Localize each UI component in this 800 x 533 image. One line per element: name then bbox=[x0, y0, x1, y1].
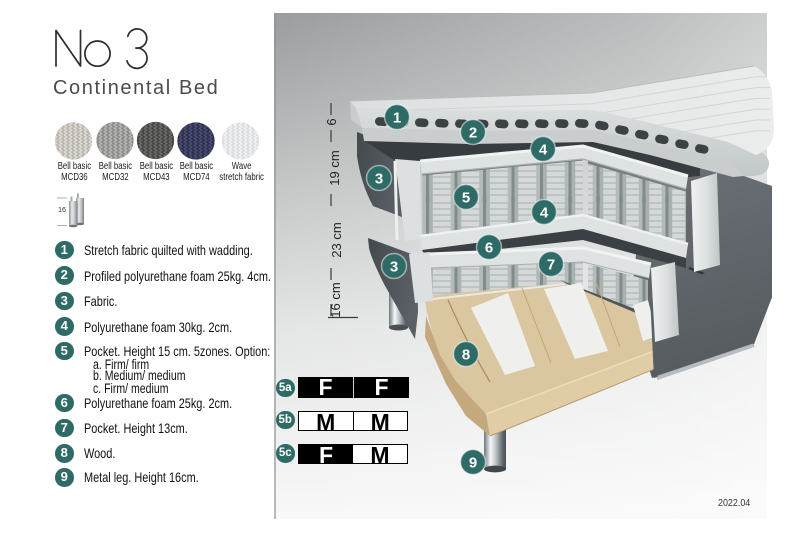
svg-text:1: 1 bbox=[393, 109, 401, 126]
svg-text:3: 3 bbox=[390, 258, 398, 275]
svg-text:3: 3 bbox=[375, 170, 383, 187]
svg-text:6: 6 bbox=[324, 118, 339, 125]
svg-text:6: 6 bbox=[485, 239, 493, 256]
svg-text:9: 9 bbox=[469, 454, 477, 471]
svg-text:19 cm: 19 cm bbox=[327, 150, 342, 185]
svg-text:4: 4 bbox=[540, 204, 549, 221]
svg-text:4: 4 bbox=[539, 141, 548, 158]
svg-text:7: 7 bbox=[547, 256, 555, 273]
svg-text:16 cm: 16 cm bbox=[328, 282, 343, 317]
svg-text:8: 8 bbox=[462, 346, 470, 363]
svg-text:16: 16 bbox=[58, 207, 66, 214]
svg-text:23 cm: 23 cm bbox=[329, 222, 344, 257]
svg-text:5: 5 bbox=[462, 189, 470, 206]
svg-text:2: 2 bbox=[469, 124, 477, 141]
